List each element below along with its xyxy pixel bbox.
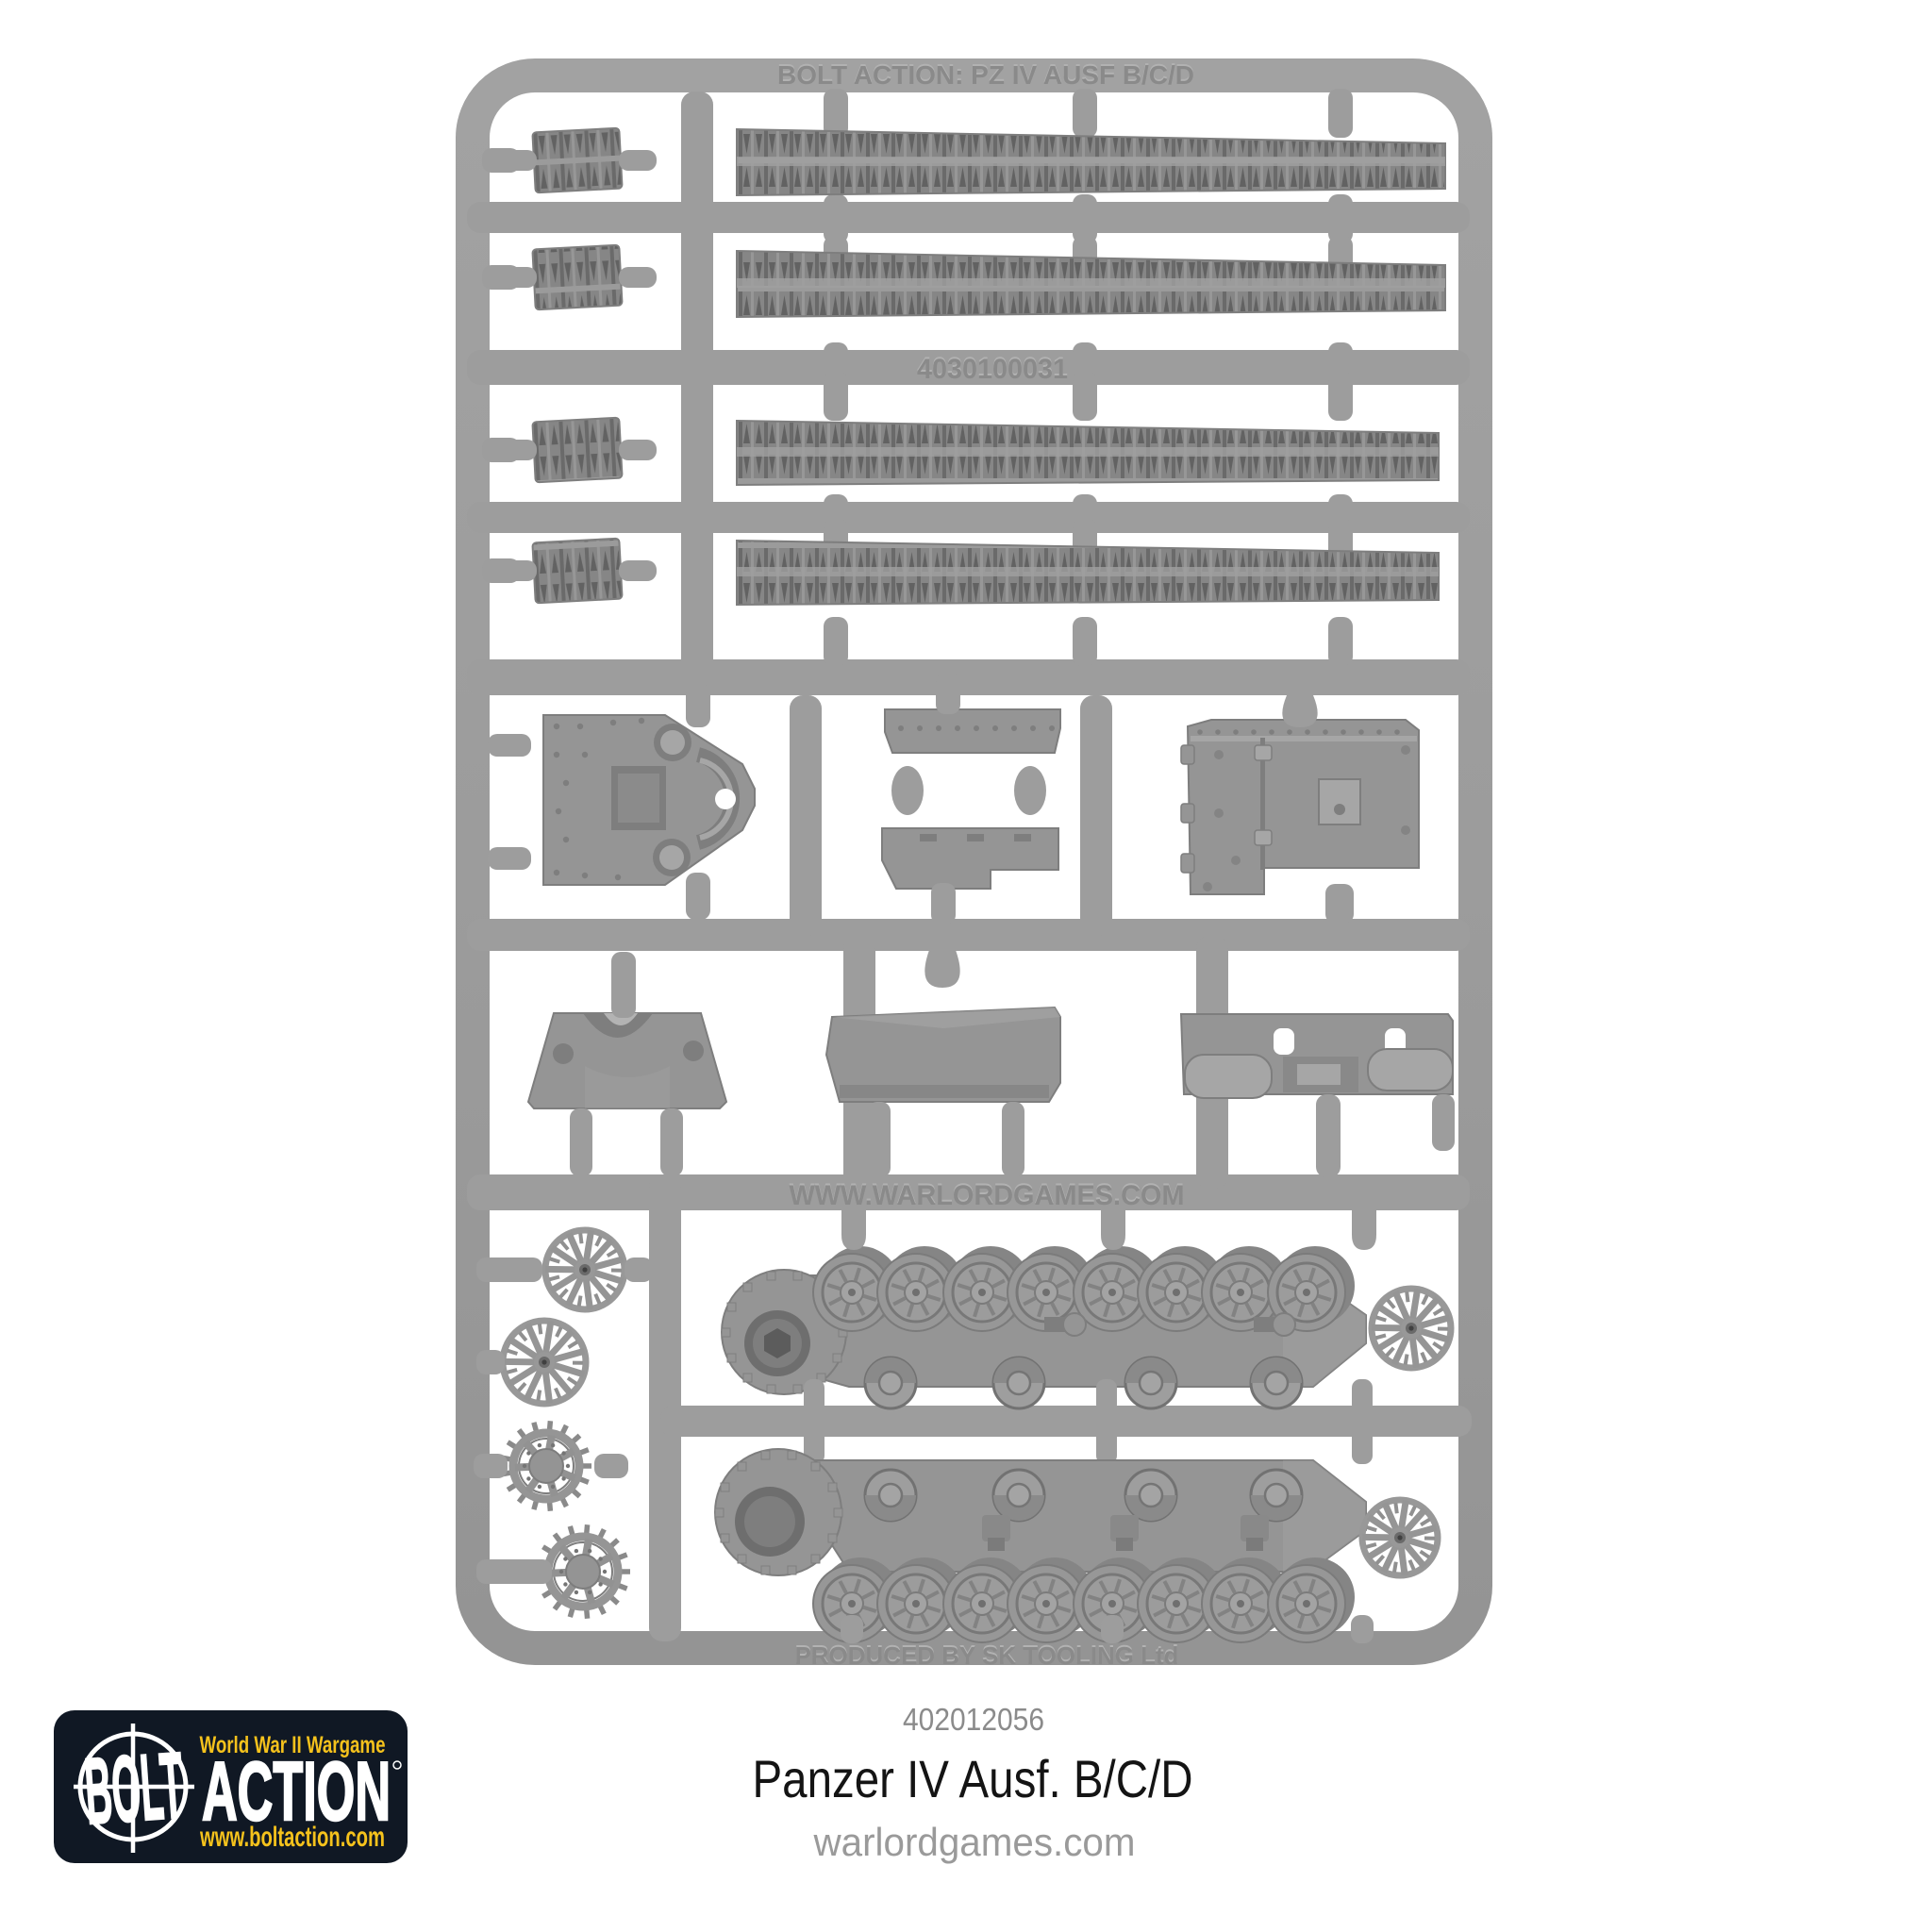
svg-text:www.boltaction.com: www.boltaction.com [199,1822,385,1853]
svg-text:402012056: 402012056 [903,1702,1044,1737]
svg-text:4030100031: 4030100031 [917,354,1068,385]
svg-text:World War II Wargame: World War II Wargame [200,1732,386,1758]
svg-text:PRODUCED BY SK TOOLING Ltd: PRODUCED BY SK TOOLING Ltd [795,1641,1179,1670]
svg-text:BOLT ACTION: PZ IV AUSF B/C/D: BOLT ACTION: PZ IV AUSF B/C/D [777,60,1194,90]
svg-text:Panzer IV Ausf. B/C/D: Panzer IV Ausf. B/C/D [753,1749,1193,1808]
svg-text:WWW.WARLORDGAMES.COM: WWW.WARLORDGAMES.COM [790,1180,1185,1211]
svg-text:warlordgames.com: warlordgames.com [813,1820,1136,1864]
svg-text:BOLT: BOLT [81,1733,187,1845]
